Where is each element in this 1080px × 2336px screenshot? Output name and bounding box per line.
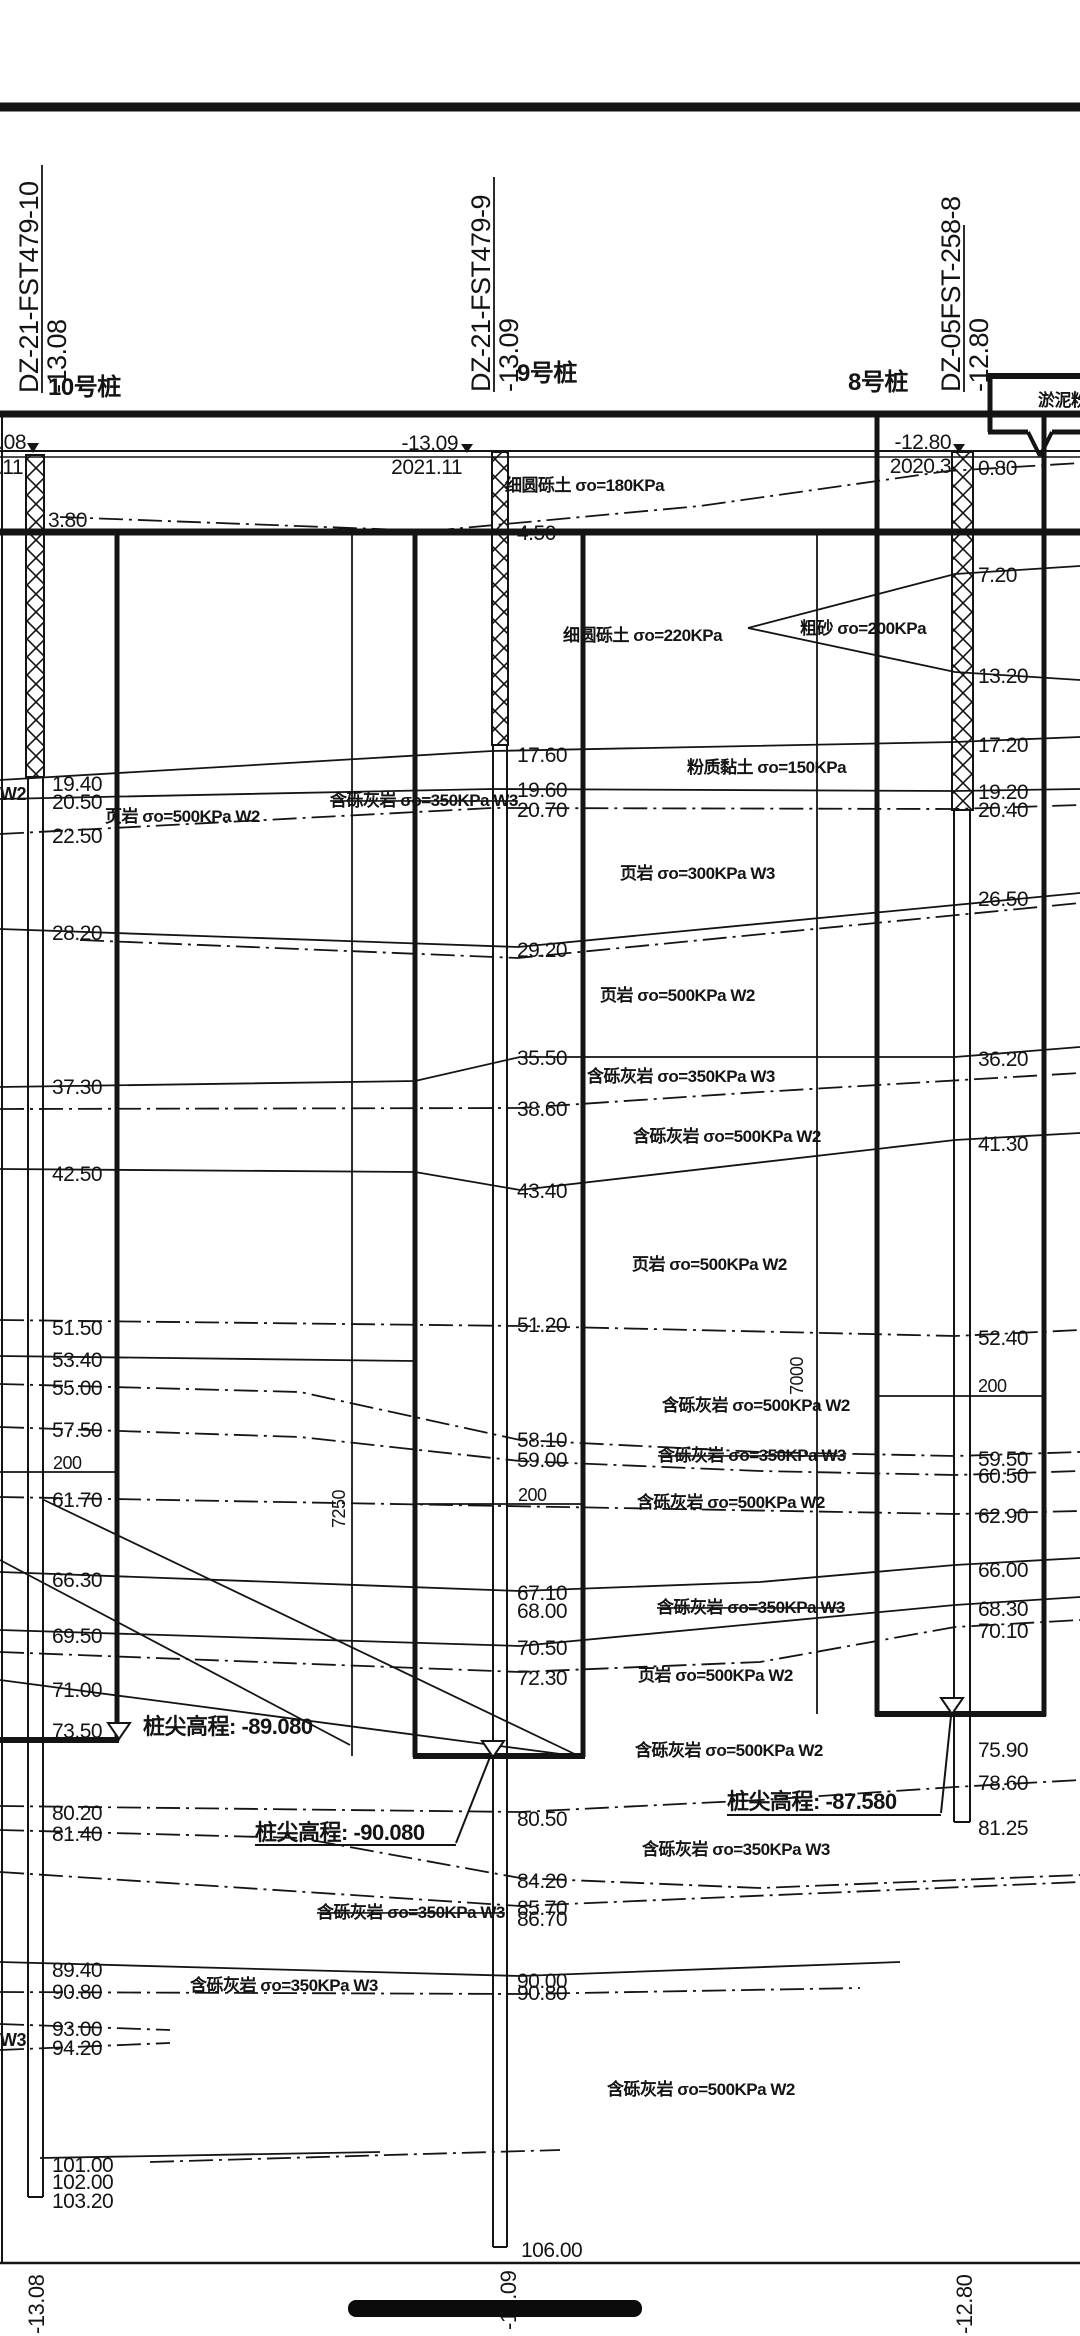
depth-label: 71.00 (52, 1679, 102, 1702)
depth-label: 80.20 (52, 1802, 102, 1825)
depth-label: 78.60 (978, 1772, 1028, 1795)
bottom-axis-elevation-label: -12.80 (952, 2274, 977, 2334)
depth-label: 35.50 (517, 1047, 567, 1070)
pile-number-label: 8号桩 (848, 368, 908, 396)
borehole-hatched-column (26, 455, 44, 777)
depth-label: 37.30 (52, 1076, 102, 1099)
borehole-name-label: DZ-21-FST479-10 (14, 181, 44, 393)
depth-label: 28.20 (52, 922, 102, 945)
soil-layer-label: 含砾灰岩 σo=500KPa W2 (607, 2079, 795, 2099)
clipped-edge-text: W3 (0, 2030, 26, 2050)
depth-label: 41.30 (978, 1133, 1028, 1156)
dimension-text: 7250 (329, 1489, 349, 1528)
soil-layer-label: 页岩 σo=500KPa W2 (105, 806, 260, 826)
pile-tip-elevation-note: 桩尖高程: -90.080 (255, 1820, 425, 1845)
surface-elevation-marker-text: -12.80 (894, 431, 951, 454)
app-screen: 淤泥粉质DZ-21-FST479-10-13.0810号桩-13.082021.… (0, 0, 1080, 2336)
soil-layer-label: 含砾灰岩 σo=350KPa W3 (190, 1975, 378, 1995)
callout-label: 淤泥粉质 (1038, 390, 1080, 410)
soil-layer-label: 页岩 σo=500KPa W2 (632, 1254, 787, 1274)
soil-layer-label: 页岩 σo=300KPa W3 (620, 863, 775, 883)
soil-layer-label: 含砾灰岩 σo=500KPa W2 (637, 1492, 825, 1512)
soil-layer-label: 细圆砾土 σo=180KPa (505, 475, 665, 495)
dimension-text: 200 (53, 1453, 82, 1473)
soil-layer-label: 含砾灰岩 σo=350KPa W3 (642, 1839, 830, 1859)
depth-label: 66.30 (52, 1569, 102, 1592)
depth-label: 106.00 (521, 2239, 582, 2262)
depth-label: 94.20 (52, 2037, 102, 2060)
surface-elevation-marker-text: -13.09 (401, 432, 458, 455)
depth-label: 73.50 (52, 1720, 102, 1743)
depth-label: 17.60 (517, 744, 567, 767)
depth-label: 103.20 (52, 2190, 113, 2213)
depth-label: 55.00 (52, 1377, 102, 1400)
borehole-elevation-label: -12.80 (964, 318, 994, 392)
depth-label: 42.50 (52, 1163, 102, 1186)
depth-label: 0.80 (978, 457, 1017, 480)
depth-label: 60.50 (978, 1465, 1028, 1488)
depth-label: 70.10 (978, 1620, 1028, 1643)
dimension-text: 7000 (787, 1356, 807, 1395)
depth-label: 52.40 (978, 1327, 1028, 1350)
pile-number-label: 10号桩 (48, 373, 121, 401)
soil-layer-label: 含砾灰岩 σo=500KPa W2 (635, 1740, 823, 1760)
soil-layer-label: 含砾灰岩 σo=500KPa W2 (633, 1126, 821, 1146)
depth-label: 61.70 (52, 1489, 102, 1512)
survey-date-text: 2021.11 (0, 456, 23, 479)
depth-label: 90.80 (52, 1981, 102, 2004)
dimension-text: 200 (518, 1485, 547, 1505)
pile-borehole-cross-section-canvas: 淤泥粉质DZ-21-FST479-10-13.0810号桩-13.082021.… (0, 0, 1080, 2336)
borehole-hatched-column (492, 452, 508, 745)
soil-layer-label: 页岩 σo=500KPa W2 (600, 985, 755, 1005)
survey-date-text: 2021.11 (391, 456, 462, 479)
pile-number-label: 9号桩 (517, 359, 577, 387)
bottom-scrub-bar[interactable] (348, 2300, 642, 2317)
borehole-hatched-column (952, 452, 973, 810)
survey-date-text: 2020.3 (890, 455, 951, 478)
depth-label: 51.20 (517, 1314, 567, 1337)
depth-label: 17.20 (978, 734, 1028, 757)
depth-label: 29.20 (517, 939, 567, 962)
depth-label: 20.70 (517, 799, 567, 822)
pile-tip-elevation-note: 桩尖高程: -89.080 (143, 1714, 313, 1739)
depth-label: 69.50 (52, 1625, 102, 1648)
depth-label: 68.00 (517, 1600, 567, 1623)
depth-label: 13.20 (978, 665, 1028, 688)
soil-layer-label: 页岩 σo=500KPa W2 (638, 1665, 793, 1685)
soil-layer-label: 含砾灰岩 σo=500KPa W2 (662, 1395, 850, 1415)
dimension-text: 200 (978, 1376, 1007, 1396)
depth-label: 59.00 (517, 1449, 567, 1472)
depth-label: 36.20 (978, 1048, 1028, 1071)
depth-label: 90.80 (517, 1982, 567, 2005)
soil-layer-label: 细圆砾土 σo=220KPa (563, 625, 723, 645)
surface-elevation-marker-text: -13.08 (0, 431, 26, 454)
soil-layer-label: 含砾灰岩 σo=350KPa W3 (587, 1066, 775, 1086)
soil-layer-label: 含砾灰岩 σo=350KPa W3 (657, 1597, 845, 1617)
clipped-edge-text: W2 (0, 784, 26, 804)
soil-layer-label: 粉质黏土 σo=150KPa (687, 757, 847, 777)
borehole-name-label: DZ-21-FST479-9 (466, 195, 496, 392)
depth-label: 20.50 (52, 791, 102, 814)
depth-label: 66.00 (978, 1559, 1028, 1582)
depth-label: 57.50 (52, 1419, 102, 1442)
depth-label: 81.40 (52, 1823, 102, 1846)
depth-label: 20.40 (978, 799, 1028, 822)
soil-layer-label: 含砾灰岩 σo=350KPa W3 (330, 790, 518, 810)
depth-label: 75.90 (978, 1739, 1028, 1762)
depth-label: 4.50 (517, 522, 556, 545)
depth-label: 86.70 (517, 1908, 567, 1931)
depth-label: 22.50 (52, 825, 102, 848)
depth-label: 38.60 (517, 1098, 567, 1121)
depth-label: 84.20 (517, 1870, 567, 1893)
depth-label: 7.20 (978, 564, 1017, 587)
depth-label: 51.50 (52, 1317, 102, 1340)
depth-label: 3.80 (48, 509, 87, 532)
soil-layer-label: 含砾灰岩 σo=350KPa W3 (658, 1445, 846, 1465)
soil-layer-label: 含砾灰岩 σo=350KPa W3 (317, 1902, 505, 1922)
depth-label: 70.50 (517, 1637, 567, 1660)
depth-label: 62.90 (978, 1505, 1028, 1528)
depth-label: 26.50 (978, 888, 1028, 911)
depth-label: 81.25 (978, 1817, 1028, 1840)
pile-tip-elevation-note: 桩尖高程: -87.580 (727, 1789, 897, 1814)
bottom-axis-elevation-label: -13.08 (24, 2274, 49, 2334)
depth-label: 80.50 (517, 1808, 567, 1831)
depth-label: 43.40 (517, 1180, 567, 1203)
depth-label: 89.40 (52, 1959, 102, 1982)
depth-label: 68.30 (978, 1598, 1028, 1621)
borehole-name-label: DZ-05FST-258-8 (936, 196, 966, 392)
soil-layer-label: 粗砂 σo=200KPa (800, 618, 927, 638)
depth-label: 72.30 (517, 1667, 567, 1690)
depth-label: 53.40 (52, 1349, 102, 1372)
